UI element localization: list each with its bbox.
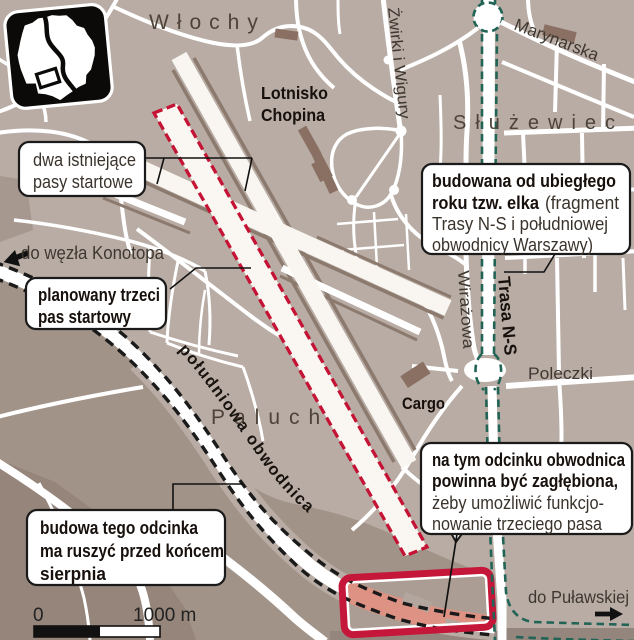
- svg-text:budowana od ubiegłego: budowana od ubiegłego: [432, 171, 616, 191]
- svg-text:pas startowy: pas startowy: [38, 307, 131, 327]
- svg-text:powinna być zagłębiona,: powinna być zagłębiona,: [432, 471, 618, 491]
- svg-text:nowanie trzeciego pasa: nowanie trzeciego pasa: [432, 514, 603, 534]
- svg-text:dwa istniejące: dwa istniejące: [33, 150, 136, 170]
- svg-text:pasy startowe: pasy startowe: [33, 172, 133, 192]
- svg-text:Włochy: Włochy: [149, 11, 266, 34]
- svg-text:Trasy N-S i południowej: Trasy N-S i południowej: [432, 214, 608, 234]
- svg-text:żeby umożliwić funkcjo-: żeby umożliwić funkcjo-: [432, 493, 604, 513]
- svg-text:Chopina: Chopina: [261, 105, 325, 125]
- svg-text:roku tzw. elka: roku tzw. elka: [432, 193, 540, 213]
- svg-text:na tym odcinku obwodnica: na tym odcinku obwodnica: [432, 450, 626, 470]
- svg-text:obwodnicy Warszawy): obwodnicy Warszawy): [432, 235, 593, 255]
- svg-text:do Puławskiej: do Puławskiej: [528, 587, 629, 607]
- svg-text:ma ruszyć przed końcem: ma ruszyć przed końcem: [40, 541, 224, 561]
- svg-text:Cargo: Cargo: [402, 395, 445, 413]
- svg-text:(fragment: (fragment: [545, 193, 619, 213]
- svg-text:1000 m: 1000 m: [133, 605, 196, 626]
- svg-text:Lotnisko: Lotnisko: [261, 83, 328, 103]
- svg-text:0: 0: [33, 605, 44, 626]
- svg-text:do węzła Konotopa: do węzła Konotopa: [21, 242, 165, 263]
- svg-text:planowany trzeci: planowany trzeci: [38, 285, 160, 305]
- svg-text:budowa tego odcinka: budowa tego odcinka: [40, 518, 199, 538]
- svg-text:Służewiec: Służewiec: [453, 112, 624, 134]
- svg-text:sierpnia: sierpnia: [40, 564, 107, 584]
- svg-text:Poleczki: Poleczki: [528, 364, 593, 383]
